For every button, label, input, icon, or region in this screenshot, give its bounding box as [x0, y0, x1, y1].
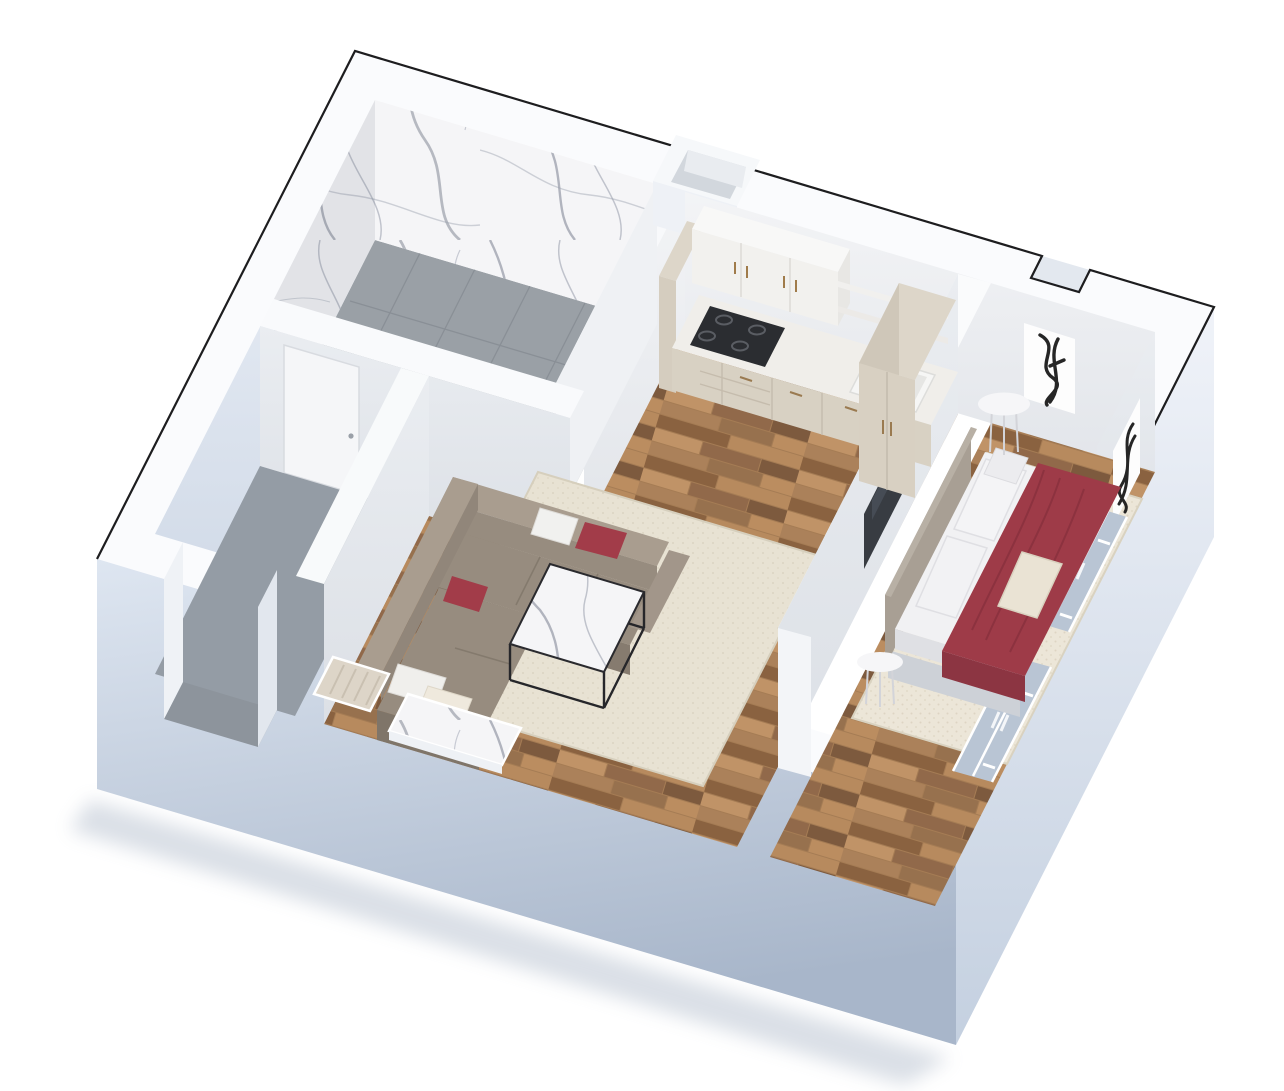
- side-table-bottom-surface: [857, 652, 903, 672]
- artwork-left: [1024, 323, 1075, 414]
- bathroom-door: [284, 345, 359, 495]
- side-table-top-surface: [978, 393, 1030, 416]
- floor-plan-render: [0, 0, 1284, 1091]
- bathroom-door-handle: [348, 433, 353, 438]
- partition-wall-end-face: [778, 628, 811, 777]
- floor-plan-stage: [0, 0, 1284, 1091]
